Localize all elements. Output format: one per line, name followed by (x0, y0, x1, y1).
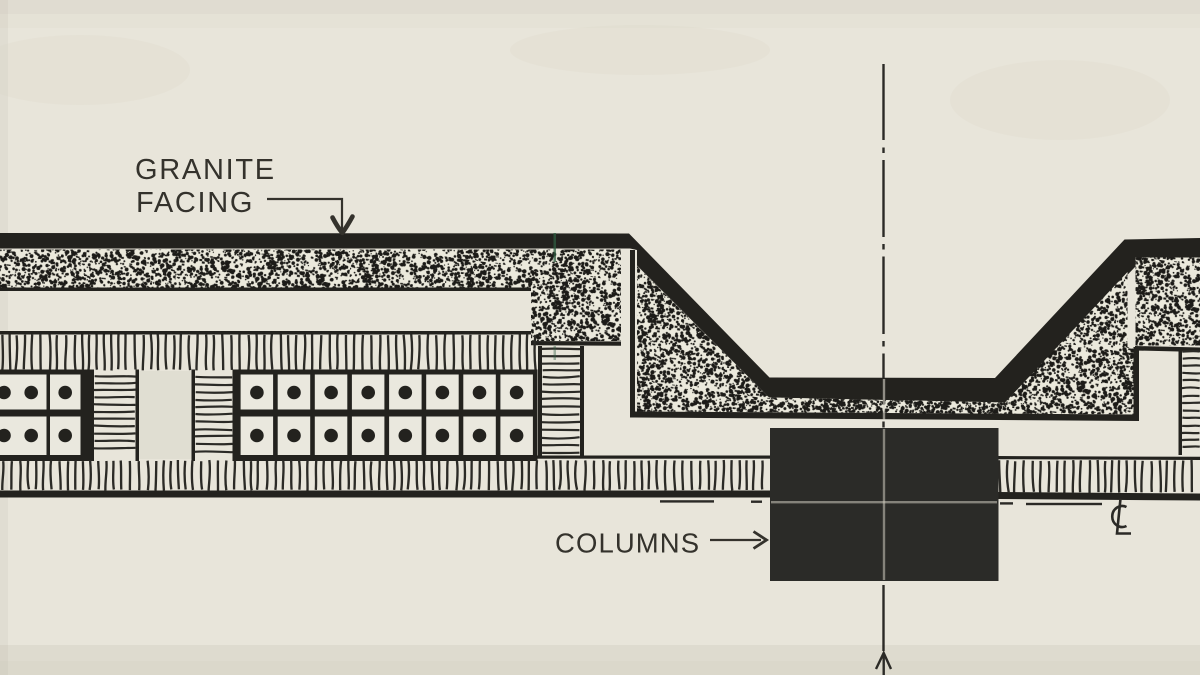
svg-text:FACING: FACING (136, 187, 254, 219)
svg-text:GRANITE: GRANITE (135, 154, 276, 186)
svg-text:COLUMNS: COLUMNS (555, 528, 700, 559)
